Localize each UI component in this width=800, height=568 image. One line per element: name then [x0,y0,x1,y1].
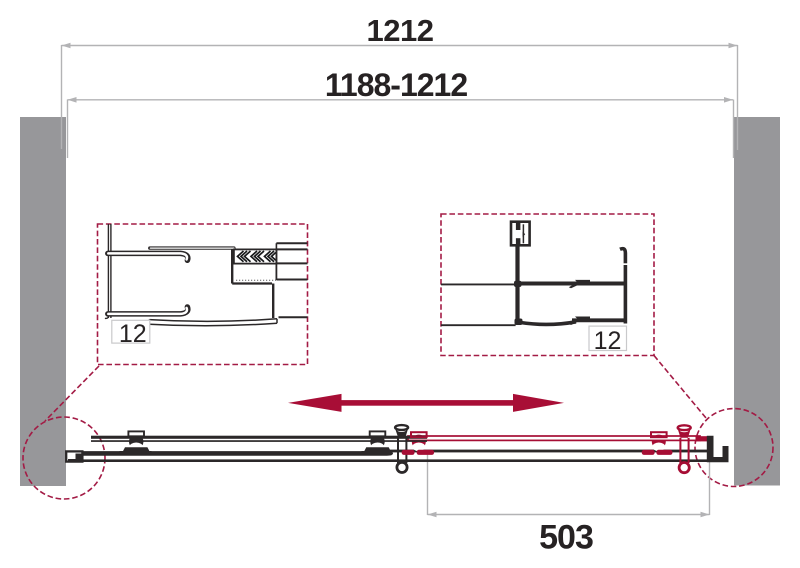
svg-text:1212: 1212 [367,13,434,48]
svg-text:12: 12 [119,320,147,348]
svg-text:503: 503 [539,519,593,557]
svg-text:12: 12 [594,327,622,355]
svg-text:1188-1212: 1188-1212 [325,67,467,103]
